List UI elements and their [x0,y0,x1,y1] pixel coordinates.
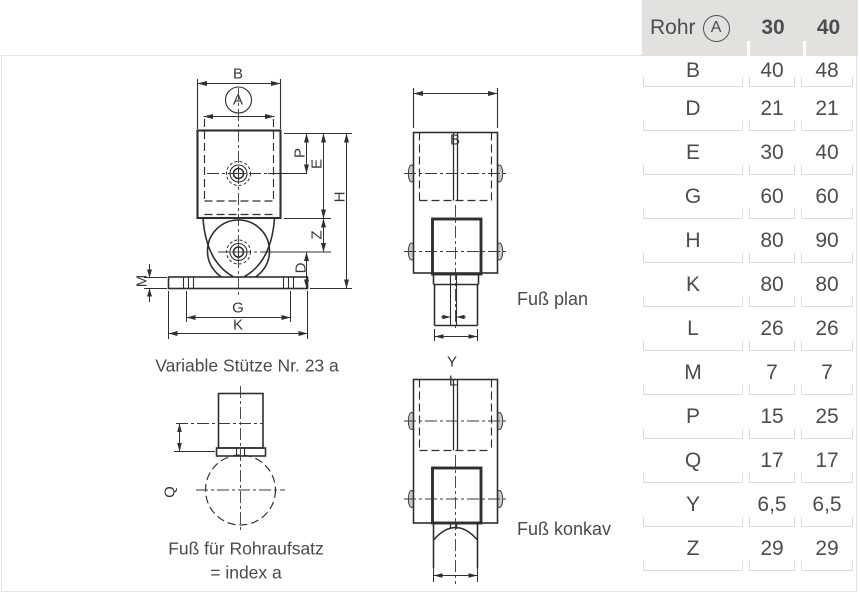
table-row: Q 17 17 [643,439,853,483]
table-row: E 30 40 [643,131,853,175]
table-row: Z 29 29 [643,527,853,571]
foot-concave-drawing [404,380,507,585]
row-label: H [643,219,743,263]
caption-foot-plan: Fuß plan [517,289,588,311]
row-value-30: 80 [749,263,795,307]
catalog-page: B A P E H Z D M G K B Y L L Q Variable S… [0,0,860,602]
row-label: Y [643,483,743,527]
table-row: Y 6,5 6,5 [643,483,853,527]
spec-table: B 40 48 D 21 21 E 30 40 G 60 60 H 80 90 … [643,56,853,571]
row-label: B [643,56,743,87]
row-value-40: 17 [801,439,853,483]
row-value-40: 26 [801,307,853,351]
dim-label-b: B [233,67,243,82]
dim-label-e: E [310,159,325,169]
dim-label-h: H [333,192,348,203]
row-value-40: 48 [801,56,853,87]
table-row: P 15 25 [643,395,853,439]
dim-label-d: D [294,263,309,274]
dim-label-q: Q [163,486,178,498]
dim-label-l: L [449,374,457,389]
dim-label-m: M [135,275,150,288]
row-value-40: 80 [801,263,853,307]
tube-symbol-label: A [233,93,243,108]
row-value-30: 15 [749,395,795,439]
row-value-40: 90 [801,219,853,263]
row-value-40: 60 [801,175,853,219]
table-row: H 80 90 [643,219,853,263]
dim-label-y: Y [447,355,457,370]
rohr-label: Rohr [650,16,696,40]
row-value-30: 6,5 [749,483,795,527]
row-value-30: 29 [749,527,795,571]
spec-table-header-label: Rohr A [642,15,747,42]
row-value-40: 40 [801,131,853,175]
row-value-30: 40 [749,56,795,87]
row-value-40: 6,5 [801,483,853,527]
table-row: K 80 80 [643,263,853,307]
row-value-40: 7 [801,351,853,395]
foot-plan-drawing [404,88,507,341]
row-value-40: 21 [801,87,853,131]
table-row: L 26 26 [643,307,853,351]
column-header-30: 30 [747,16,799,40]
dim-label-z: Z [310,230,325,239]
spec-table-header: Rohr A 30 40 [642,0,858,56]
row-value-30: 60 [749,175,795,219]
row-label: P [643,395,743,439]
row-label: D [643,87,743,131]
row-label: G [643,175,743,219]
row-label: K [643,263,743,307]
row-label: Z [643,527,743,571]
row-value-30: 30 [749,131,795,175]
main-support-drawing [144,79,352,339]
tube-foot-drawing [174,386,285,532]
header-separator [747,41,750,56]
row-label: E [643,131,743,175]
dim-label-g: G [232,301,244,316]
table-row: D 21 21 [643,87,853,131]
row-value-30: 26 [749,307,795,351]
caption-tube-foot-line2: = index a [210,563,282,584]
row-value-30: 17 [749,439,795,483]
header-separator [803,41,806,56]
caption-main-view: Variable Stütze Nr. 23 a [155,356,339,377]
row-label: L [643,307,743,351]
row-value-40: 29 [801,527,853,571]
row-value-30: 80 [749,219,795,263]
row-value-40: 25 [801,395,853,439]
row-value-30: 7 [749,351,795,395]
dim-label-b2: B [450,133,460,148]
caption-foot-concave: Fuß konkav [517,519,611,541]
table-row: G 60 60 [643,175,853,219]
row-label: Q [643,439,743,483]
dim-label-p: P [293,148,308,158]
tube-diameter-circle-icon: A [703,15,730,42]
row-value-30: 21 [749,87,795,131]
caption-tube-foot-line1: Fuß für Rohraufsatz [168,539,324,560]
dim-label-k: K [233,318,243,333]
row-label: M [643,351,743,395]
table-row: B 40 48 [643,56,853,87]
table-row: M 7 7 [643,351,853,395]
column-header-40: 40 [799,16,858,40]
